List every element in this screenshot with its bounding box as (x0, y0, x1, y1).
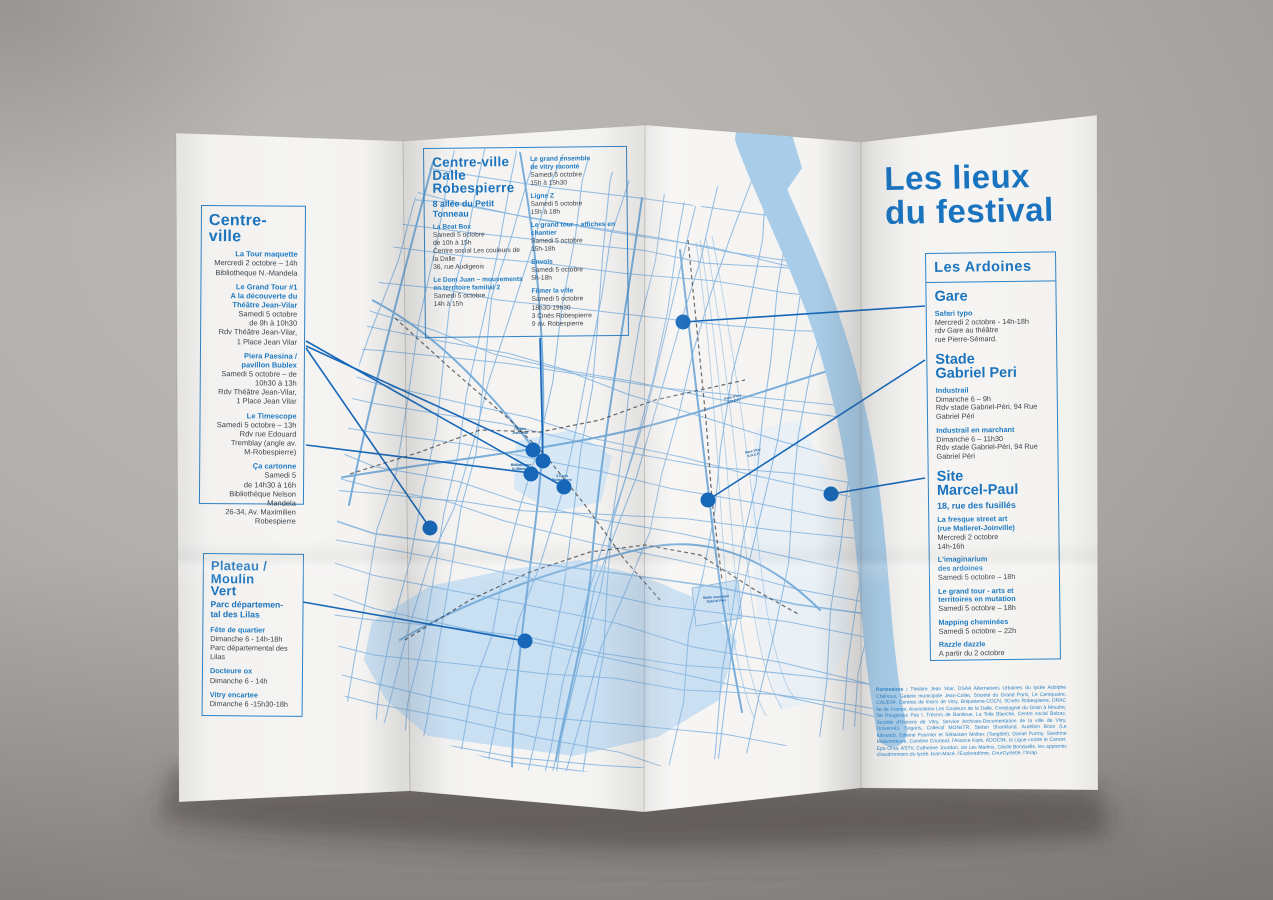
map-marker-stade-gabriel-peri (701, 493, 716, 508)
event-details: Samedi 5 octobre 15h-18h (531, 237, 623, 254)
event-details: Dimanche 6 -15h30-18h (210, 699, 295, 709)
plateau-title: Plateau / Moulin Vert (211, 560, 296, 599)
event-item: Industrail en marchantDimanche 6 – 11h30… (936, 425, 1049, 461)
map-marker-parc-des-lilas (518, 634, 533, 649)
event-item: Safari typoMercredi 2 octobre - 14h-18h … (935, 308, 1048, 344)
event-details: Samedi 5 octobre de 10h à 15h Centre soc… (433, 231, 525, 272)
event-item: Fête de quartierDimanche 6 - 14h-18h Par… (210, 625, 295, 662)
ardoines-section-heading: Site Marcel-Paul (937, 468, 1050, 498)
event-name: Le Dom Juan – mouvements en territoire f… (433, 276, 525, 293)
les-ardoines-box: Les Ardoines GareSafari typoMercredi 2 o… (925, 251, 1061, 661)
brochure-photo: Gare d'IvryS.N.C.F.Gare VitryS.N.C.F.Sta… (0, 0, 1273, 900)
event-item: Ça cartonneSamedi 5 de 14h30 à 16h Bibli… (207, 461, 296, 526)
ardoines-section-heading: Stade Gabriel Peri (935, 351, 1048, 381)
event-item: Docteure oxDimanche 6 - 14h (210, 666, 295, 685)
ardoines-section-subheading: 18, rue des fusillés (937, 499, 1050, 511)
event-item: Le TimescopeSamedi 5 octobre – 13h Rdv r… (207, 411, 296, 457)
dalle-robespierre-box: Centre-ville Dalle Robespierre 8 allée d… (423, 146, 629, 338)
photo-background: Gare d'IvryS.N.C.F.Gare VitryS.N.C.F.Sta… (0, 0, 1273, 900)
map-marker-bibliotheque-mandela (524, 467, 539, 482)
event-details: Dimanche 6 – 9h Rdv stade Gabriel-Péri, … (936, 394, 1049, 422)
event-item: Le Dom Juan – mouvements en territoire f… (433, 276, 525, 309)
event-details: Samedi 5 octobre – 18h (938, 604, 1051, 614)
event-item: La fresque street art (rue Malleret-Join… (937, 515, 1050, 551)
ardoines-title: Les Ardoines (926, 252, 1055, 283)
partners-list: Théâtre Jean Vilar, DSAA Alternatives Ur… (876, 685, 1067, 758)
dalle-events-col1: La Beat BoxSamedi 5 octobre de 10h à 15h… (433, 223, 526, 309)
event-name: Le grand tour - arts et territoires en m… (938, 586, 1051, 605)
page-title: Les lieux du festival (884, 158, 1105, 230)
partners-label: Partenaires : (876, 687, 908, 693)
event-item: Ligne ZSamedi 5 octobre 15h à 18h (530, 192, 622, 217)
event-details: Dimanche 6 – 11h30 Rdv stade Gabriel-Pér… (936, 434, 1049, 462)
centre-ville-events: La Tour maquetteMercredi 2 octobre – 14h… (207, 249, 298, 526)
dalle-column-1: Centre-ville Dalle Robespierre 8 allée d… (432, 155, 526, 309)
event-name: La fresque street art (rue Malleret-Join… (937, 515, 1050, 534)
event-name: Vitry encartee (210, 690, 295, 700)
centre-ville-box: Centre-ville La Tour maquetteMercredi 2 … (199, 205, 306, 505)
event-item: L'imaginarium des ardoinesSamedi 5 octob… (938, 555, 1051, 583)
event-details: Dimanche 6 - 14h (210, 676, 295, 686)
event-details: Samedi 5 octobre – 13h Rdv rue Edouard T… (207, 420, 296, 457)
map-marker-gare-les-ardoines (676, 315, 691, 330)
event-item: EnvolsSamedi 5 octobre 5h-18h (531, 258, 623, 283)
event-details: Samedi 5 octobre 14h à 15h (434, 292, 526, 309)
event-details: Dimanche 6 - 14h-18h Parc départemental … (210, 634, 295, 662)
centre-ville-title: Centre-ville (209, 213, 298, 245)
event-item: Le grand tour – affiches en chantierSame… (531, 221, 623, 254)
event-details: Samedi 5 octobre de 9h à 10h30 Rdv Théât… (208, 309, 297, 346)
map-marker-cines-robespierre (557, 480, 572, 495)
ardoines-sections: GareSafari typoMercredi 2 octobre - 14h-… (926, 282, 1060, 665)
event-item: Mapping cheminéesSamedi 5 octobre – 22h (938, 617, 1051, 636)
event-name: Le grand tour – affiches en chantier (531, 221, 623, 238)
dalle-subtitle: 8 allée du Petit Tonneau (433, 198, 525, 219)
event-item: Le grand tour - arts et territoires en m… (938, 586, 1051, 614)
dalle-title: Centre-ville Dalle Robespierre (432, 155, 524, 196)
event-details: Mercredi 2 octobre - 14h-18h rdv Gare au… (935, 317, 1048, 345)
plateau-subtitle: Parc départemen- tal des Lilas (210, 600, 295, 620)
ardoines-section-heading: Gare (934, 289, 1047, 305)
map-marker-rue-edouard-tremblay (423, 521, 438, 536)
map-marker-dalle-robespierre (536, 454, 551, 469)
event-details: Mercredi 2 octobre – 14h Bibliotheque N.… (208, 259, 297, 278)
event-name: Le Grand Tour #1 A la découverte du Théâ… (208, 282, 297, 310)
event-details: Samedi 5 octobre 18h30-19h30 3 Cinés Rob… (532, 295, 624, 328)
event-details: Samedi 5 octobre 15h à 15h30 (530, 171, 622, 188)
event-item: La Tour maquetteMercredi 2 octobre – 14h… (208, 249, 297, 277)
dalle-column-2: Le grand ensemble de vitry racontéSamedi… (530, 154, 624, 329)
map-marker-site-marcel-paul (824, 487, 839, 502)
partners-text: Partenaires : Théâtre Jean Vilar, DSAA A… (876, 685, 1067, 759)
event-item: Le Grand Tour #1 A la découverte du Théâ… (208, 282, 297, 347)
event-details: Samedi 5 octobre – de 10h30 à 13h Rdv Th… (208, 369, 297, 406)
event-item: IndustrailDimanche 6 – 9h Rdv stade Gabr… (936, 385, 1049, 421)
event-details: Samedi 5 octobre – 22h (939, 626, 1052, 636)
event-item: Filmer la villeSamedi 5 octobre 18h30-19… (531, 287, 623, 328)
event-item: La Beat BoxSamedi 5 octobre de 10h à 15h… (433, 223, 525, 272)
event-details: Samedi 5 octobre 5h-18h (531, 266, 623, 283)
event-item: Vitry encarteeDimanche 6 -15h30-18h (210, 690, 295, 709)
event-details: Samedi 5 octobre 15h à 18h (531, 200, 623, 217)
event-item: Piera Paesina / pavillon BublexSamedi 5 … (208, 351, 297, 406)
dalle-events-col2: Le grand ensemble de vitry racontéSamedi… (530, 155, 624, 329)
event-name: Le grand ensemble de vitry raconté (530, 155, 622, 172)
event-details: Samedi 5 de 14h30 à 16h Bibliothèque Nel… (207, 470, 296, 525)
plateau-events: Fête de quartierDimanche 6 - 14h-18h Par… (210, 625, 296, 709)
event-details: A partir du 2 octobre (939, 649, 1052, 659)
event-details: Samedi 5 octobre – 18h (938, 572, 1051, 582)
event-item: Razzle dazzleA partir du 2 octobre (939, 640, 1052, 659)
event-name: Docteure ox (210, 666, 295, 676)
event-name: Piera Paesina / pavillon Bublex (208, 351, 297, 370)
plateau-moulin-vert-box: Plateau / Moulin Vert Parc départemen- t… (202, 553, 304, 717)
event-details: Mercredi 2 octobre 14h-16h (937, 532, 1050, 551)
event-name: L'imaginarium des ardoines (938, 555, 1051, 574)
event-item: Le grand ensemble de vitry racontéSamedi… (530, 155, 622, 188)
